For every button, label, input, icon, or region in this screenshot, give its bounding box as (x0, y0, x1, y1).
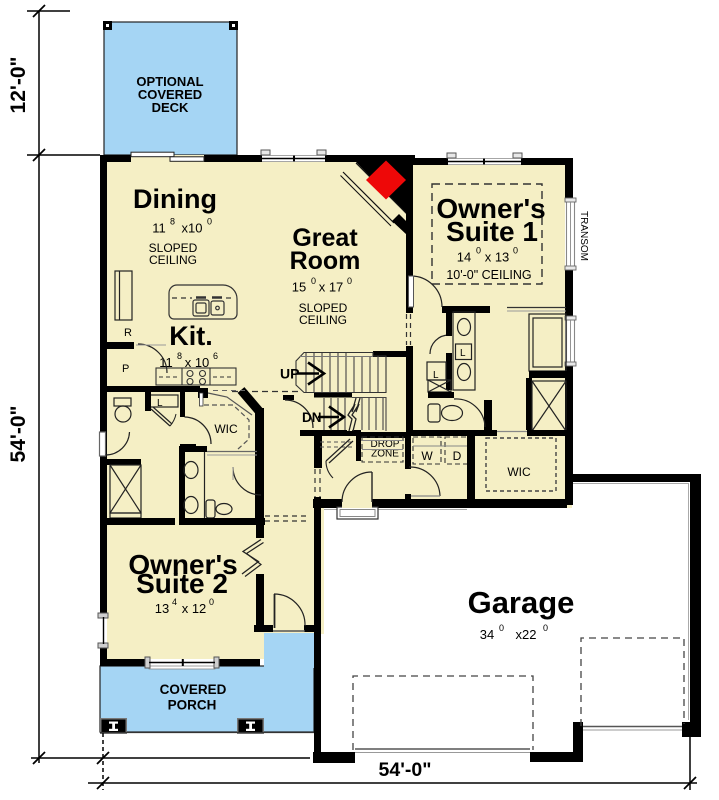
svg-text:0: 0 (347, 276, 352, 286)
svg-text:0: 0 (499, 623, 504, 633)
svg-text:R: R (124, 327, 132, 339)
svg-text:54'-0": 54'-0" (7, 406, 30, 463)
svg-text:L: L (157, 398, 163, 409)
svg-text:D: D (453, 449, 462, 463)
svg-text:Room: Room (290, 247, 361, 275)
svg-text:0: 0 (476, 246, 481, 256)
svg-text:WIC: WIC (214, 422, 238, 436)
svg-text:13: 13 (155, 601, 169, 616)
svg-text:COVERED: COVERED (160, 682, 227, 697)
svg-text:Dining: Dining (133, 184, 217, 214)
svg-text:6: 6 (213, 351, 218, 361)
svg-text:Garage: Garage (468, 585, 575, 620)
svg-text:W: W (421, 449, 433, 463)
svg-text:54'-0": 54'-0" (379, 759, 432, 781)
svg-text:L: L (460, 348, 466, 359)
svg-text:ZONE: ZONE (371, 449, 399, 460)
svg-text:x 17: x 17 (319, 280, 344, 295)
svg-text:UP: UP (280, 366, 299, 382)
svg-text:8: 8 (177, 351, 182, 361)
svg-text:x 12: x 12 (182, 601, 207, 616)
svg-text:0: 0 (311, 276, 316, 286)
svg-text:34: 34 (480, 627, 494, 642)
svg-text:L: L (433, 370, 439, 381)
svg-text:Kit.: Kit. (169, 321, 213, 351)
svg-text:x10: x10 (182, 221, 203, 236)
svg-text:10'-0" CEILING: 10'-0" CEILING (446, 268, 531, 282)
svg-text:CEILING: CEILING (299, 313, 347, 327)
svg-text:P: P (122, 363, 129, 375)
svg-text:Suite 2: Suite 2 (136, 568, 228, 599)
svg-text:x22: x22 (516, 627, 537, 642)
svg-text:0: 0 (543, 623, 548, 633)
svg-text:DECK: DECK (152, 100, 189, 115)
svg-text:x 13: x 13 (485, 250, 510, 265)
svg-text:TRANSOM: TRANSOM (578, 211, 589, 261)
svg-text:CEILING: CEILING (149, 253, 197, 267)
svg-text:WIC: WIC (507, 465, 531, 479)
svg-text:Suite 1: Suite 1 (446, 216, 538, 247)
svg-text:15: 15 (292, 280, 306, 295)
svg-text:4: 4 (172, 597, 177, 607)
svg-text:0: 0 (209, 597, 214, 607)
svg-text:11: 11 (152, 221, 166, 236)
svg-text:12'-0": 12'-0" (7, 57, 30, 114)
svg-text:PORCH: PORCH (168, 698, 217, 713)
svg-text:8: 8 (170, 217, 175, 227)
svg-text:14: 14 (457, 250, 471, 265)
svg-text:0: 0 (207, 217, 212, 227)
svg-text:0: 0 (513, 246, 518, 256)
